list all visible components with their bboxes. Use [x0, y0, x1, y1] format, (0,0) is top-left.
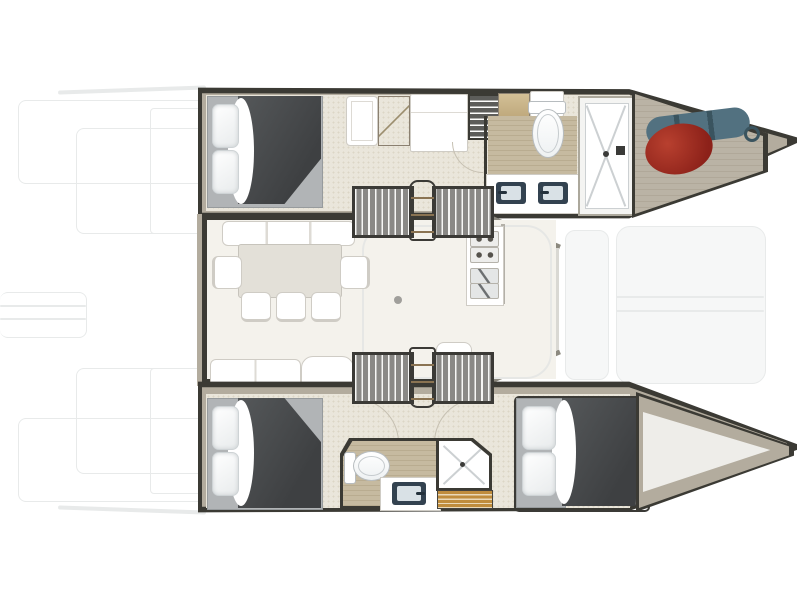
stern-step-line	[0, 318, 86, 320]
port-stairs-left	[352, 186, 414, 238]
door-handle-dot	[394, 296, 402, 304]
port-steps-cabinet	[409, 180, 436, 241]
end-chair	[212, 256, 242, 289]
galley-counter	[466, 226, 504, 306]
starboard-stairs-left	[352, 352, 414, 404]
toilet-seat	[358, 456, 385, 476]
sink	[392, 482, 426, 505]
faucet	[416, 492, 425, 495]
shower-drain	[603, 151, 609, 157]
galley-sink	[470, 283, 499, 299]
roof-edge-line	[58, 85, 206, 94]
shower-drain	[460, 462, 465, 467]
starboard-steps-cabinet	[409, 347, 436, 408]
faucet	[498, 191, 507, 194]
dining-chair	[241, 292, 271, 322]
pillow	[212, 150, 239, 194]
roof-edge-line	[58, 505, 206, 514]
trampoline-pad	[565, 230, 609, 380]
pillow	[522, 452, 556, 496]
stove-burner-panel	[470, 247, 499, 263]
wood-cabinet	[378, 96, 410, 146]
dining-chair	[311, 292, 341, 322]
trampoline-pad	[616, 226, 766, 384]
port-shower	[578, 96, 636, 216]
trampoline-lacing-line	[616, 296, 764, 298]
stern-platform-outline	[0, 292, 87, 338]
pillow	[212, 452, 239, 496]
pillow	[212, 406, 239, 450]
gear-bag-handle	[744, 126, 760, 142]
toilet	[532, 109, 564, 158]
sink	[538, 182, 568, 204]
end-chair	[340, 256, 370, 289]
wardrobe-cabinet	[346, 96, 378, 146]
pillow	[212, 104, 239, 148]
toilet-seat	[537, 114, 559, 153]
starboard-stairs-right	[432, 352, 494, 404]
catamaran-floor-plan	[0, 0, 800, 600]
port-stairs-right	[432, 186, 494, 238]
stern-step-line	[0, 305, 86, 307]
sink	[496, 182, 526, 204]
shower-control	[616, 146, 625, 155]
teak-slat-bench	[437, 490, 493, 509]
galley-sink	[470, 268, 499, 284]
faucet	[540, 191, 549, 194]
forward-sofa	[222, 221, 355, 246]
dining-chair	[276, 292, 306, 322]
pillow	[522, 406, 556, 450]
dining-table	[238, 244, 342, 298]
forward-door-line	[556, 248, 559, 350]
trampoline-lacing-line	[616, 310, 764, 312]
